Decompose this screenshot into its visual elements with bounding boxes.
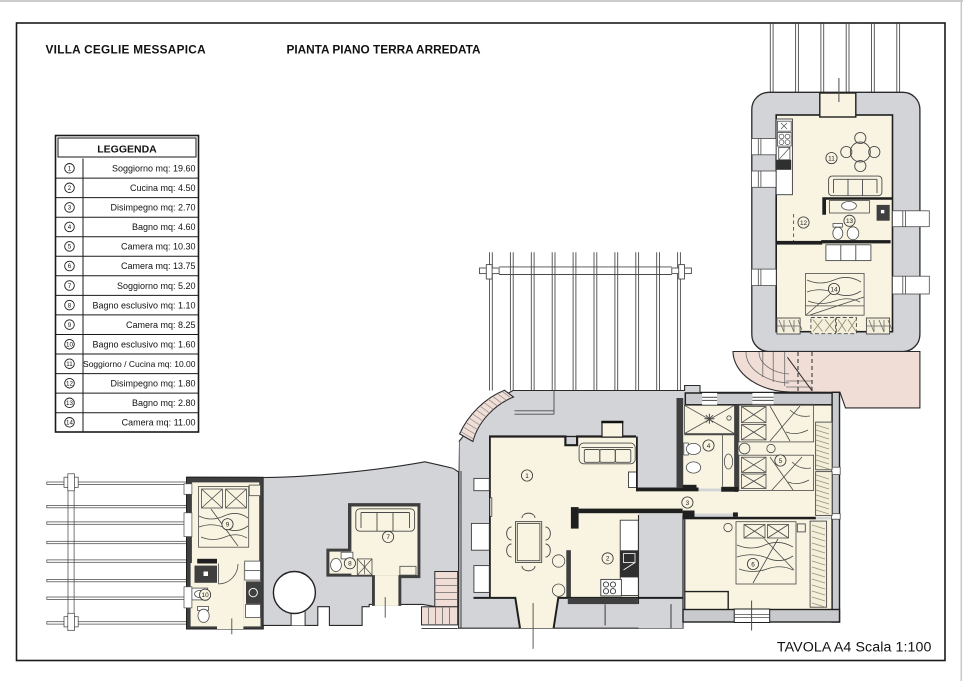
svg-text:6: 6: [68, 263, 72, 270]
svg-text:VILLA CEGLIE MESSAPICA: VILLA CEGLIE MESSAPICA: [46, 43, 207, 57]
svg-text:7: 7: [68, 283, 72, 290]
svg-text:1: 1: [525, 473, 529, 480]
svg-text:12: 12: [800, 220, 808, 227]
svg-text:4: 4: [68, 224, 72, 231]
svg-text:7: 7: [386, 534, 390, 541]
svg-text:3: 3: [68, 205, 72, 212]
svg-text:Bagno mq: 2.80: Bagno mq: 2.80: [132, 398, 196, 408]
svg-text:Bagno esclusivo mq: 1.10: Bagno esclusivo mq: 1.10: [92, 300, 195, 310]
svg-text:11: 11: [66, 361, 73, 368]
svg-text:13: 13: [66, 400, 73, 407]
svg-text:Soggiorno mq: 19.60: Soggiorno mq: 19.60: [112, 164, 196, 174]
svg-text:Disimpegno mq: 2.70: Disimpegno mq: 2.70: [110, 203, 195, 213]
svg-text:13: 13: [846, 218, 854, 225]
svg-text:Soggiorno / Cucina mq: 10.00: Soggiorno / Cucina mq: 10.00: [83, 359, 196, 369]
svg-text:4: 4: [707, 443, 711, 450]
svg-text:1: 1: [68, 166, 72, 173]
svg-text:Bagno esclusivo mq: 1.60: Bagno esclusivo mq: 1.60: [92, 339, 195, 349]
svg-text:9: 9: [226, 522, 230, 529]
svg-text:5: 5: [68, 244, 72, 251]
svg-text:12: 12: [66, 381, 73, 388]
svg-text:14: 14: [830, 286, 838, 293]
svg-text:14: 14: [66, 420, 73, 427]
svg-text:8: 8: [68, 302, 72, 309]
svg-text:6: 6: [751, 561, 755, 568]
svg-text:2: 2: [68, 185, 72, 192]
svg-text:Camera mq: 8.25: Camera mq: 8.25: [126, 320, 196, 330]
svg-text:2: 2: [606, 556, 610, 563]
svg-text:PIANTA PIANO TERRA ARREDATA: PIANTA PIANO TERRA ARREDATA: [287, 43, 481, 57]
svg-text:Disimpegno mq: 1.80: Disimpegno mq: 1.80: [110, 379, 195, 389]
svg-text:Bagno mq: 4.60: Bagno mq: 4.60: [132, 222, 196, 232]
svg-text:5: 5: [779, 458, 783, 465]
svg-text:10: 10: [202, 592, 210, 599]
svg-text:8: 8: [348, 561, 352, 568]
svg-text:9: 9: [68, 322, 72, 329]
svg-text:Soggiorno mq: 5.20: Soggiorno mq: 5.20: [117, 281, 196, 291]
svg-text:3: 3: [686, 500, 690, 507]
svg-text:10: 10: [66, 341, 73, 348]
svg-text:Camera mq: 10.30: Camera mq: 10.30: [121, 242, 196, 252]
svg-text:11: 11: [828, 155, 835, 162]
svg-text:Cucina mq: 4.50: Cucina mq: 4.50: [130, 183, 196, 193]
svg-text:TAVOLA A4 Scala 1:100: TAVOLA A4 Scala 1:100: [777, 640, 932, 656]
svg-text:Camera mq: 11.00: Camera mq: 11.00: [122, 418, 196, 428]
svg-text:LEGGENDA: LEGGENDA: [97, 144, 157, 156]
svg-text:Camera mq: 13.75: Camera mq: 13.75: [121, 261, 196, 271]
